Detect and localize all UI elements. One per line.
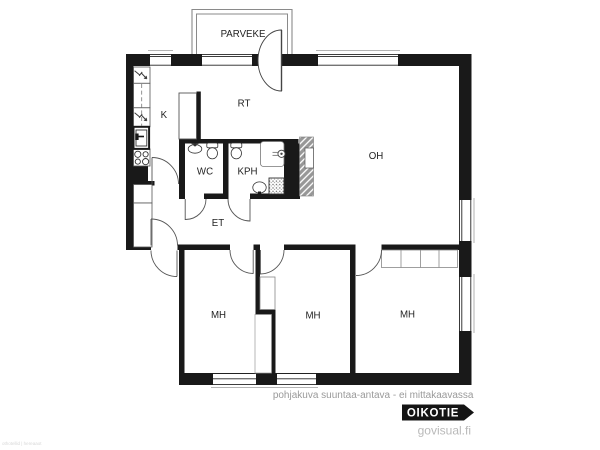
svg-text:OIKOTIE: OIKOTIE — [407, 408, 459, 420]
svg-text:RT: RT — [238, 99, 251, 110]
svg-text:othotellid | hereaaot: othotellid | hereaaot — [2, 441, 42, 446]
svg-text:KPH: KPH — [238, 167, 258, 178]
svg-text:PARVEKE: PARVEKE — [221, 29, 266, 40]
svg-text:govisual.fi: govisual.fi — [418, 424, 471, 438]
svg-text:OH: OH — [369, 151, 384, 162]
svg-text:pohjakuva suuntaa-antava - ei: pohjakuva suuntaa-antava - ei mittakaava… — [273, 390, 474, 401]
svg-text:MH: MH — [211, 310, 226, 321]
svg-text:WC: WC — [197, 167, 213, 178]
svg-text:ET: ET — [212, 218, 224, 229]
svg-text:K: K — [161, 110, 168, 121]
svg-text:MH: MH — [305, 311, 320, 322]
svg-text:MH: MH — [400, 310, 415, 321]
